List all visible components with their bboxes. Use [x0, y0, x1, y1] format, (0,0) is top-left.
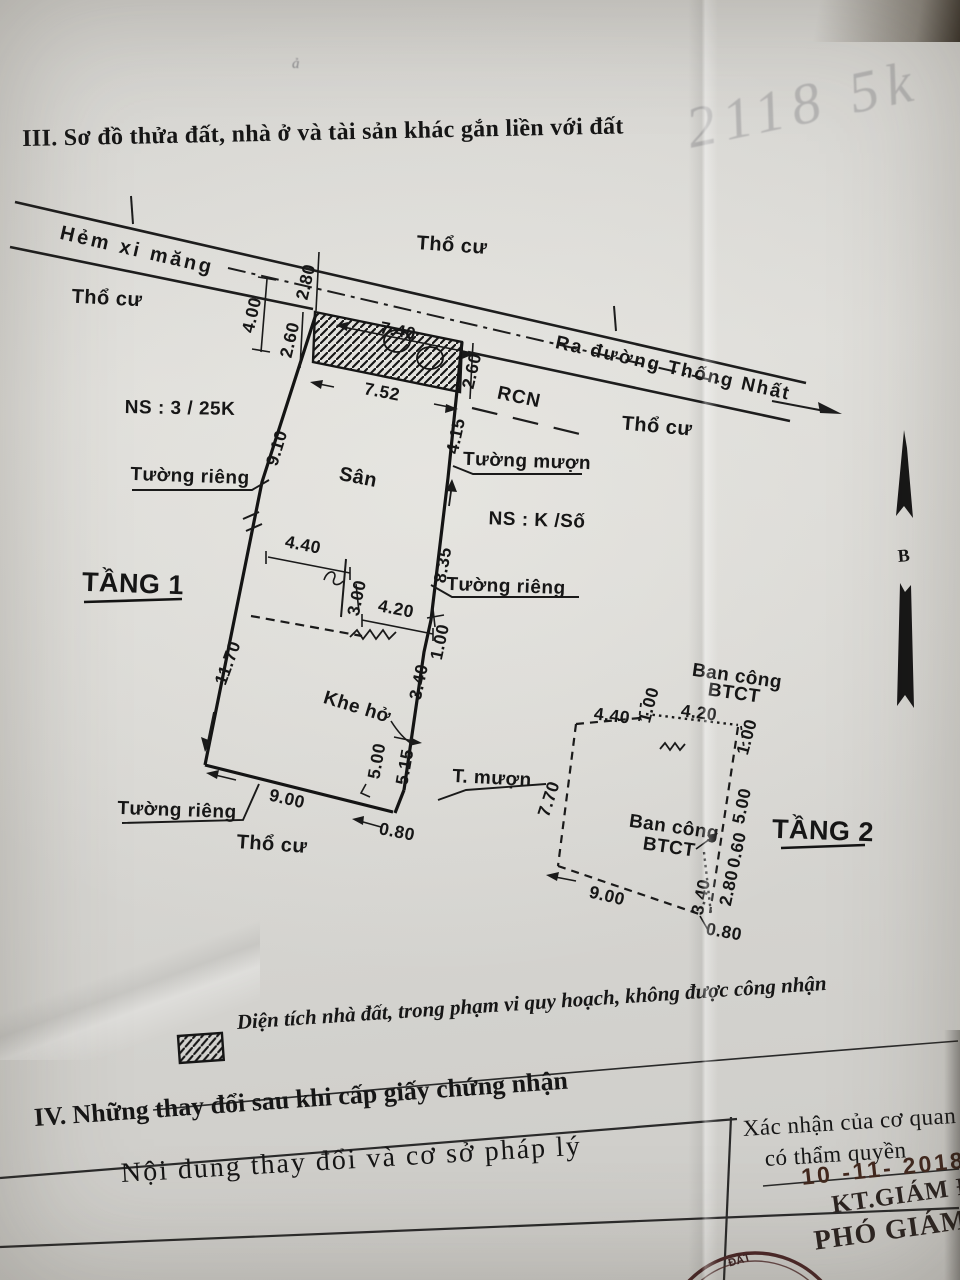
- stairs-zigzag-floor2: [660, 743, 685, 750]
- interior-dashed-wall: [251, 616, 362, 636]
- dim-t2-4-20: 4.20: [680, 700, 718, 725]
- legend-hatch-swatch: [178, 1033, 224, 1063]
- pen-scribble: [324, 572, 343, 585]
- label-tuong-muon: Tường mượn: [463, 449, 592, 475]
- label-tang-1: TẦNG 1: [81, 567, 184, 602]
- label-tuong-rieng-1: Tường riêng: [130, 464, 250, 490]
- scanned-land-certificate-page: III. Sơ đồ thửa đất, nhà ở và tài sản kh…: [0, 0, 960, 1280]
- dim-t2-4-40: 4.40: [593, 703, 631, 728]
- rcn-dashed-line: [472, 408, 592, 437]
- label-t-muon: T. mượn: [452, 766, 532, 792]
- label-tang-2: TẦNG 2: [771, 814, 874, 849]
- road-direction-arrowhead: [818, 402, 842, 414]
- north-mark-letter: B: [897, 545, 911, 567]
- label-tuong-rieng-3: Tường riêng: [117, 798, 237, 824]
- label-tho-cu-bottom: Thổ cư: [236, 831, 308, 859]
- label-tuong-rieng-2: Tường riêng: [446, 574, 566, 600]
- parcel-outline-floor1: [205, 314, 462, 813]
- label-ns-k-so: NS : K /Số: [488, 508, 586, 533]
- north-arrow: [896, 430, 914, 708]
- label-ns-3-25k: NS : 3 / 25K: [125, 397, 236, 421]
- handwritten-mark: ả: [292, 56, 300, 73]
- label-tho-cu-top: Thổ cư: [416, 232, 488, 260]
- label-tho-cu-left: Thổ cư: [71, 286, 143, 313]
